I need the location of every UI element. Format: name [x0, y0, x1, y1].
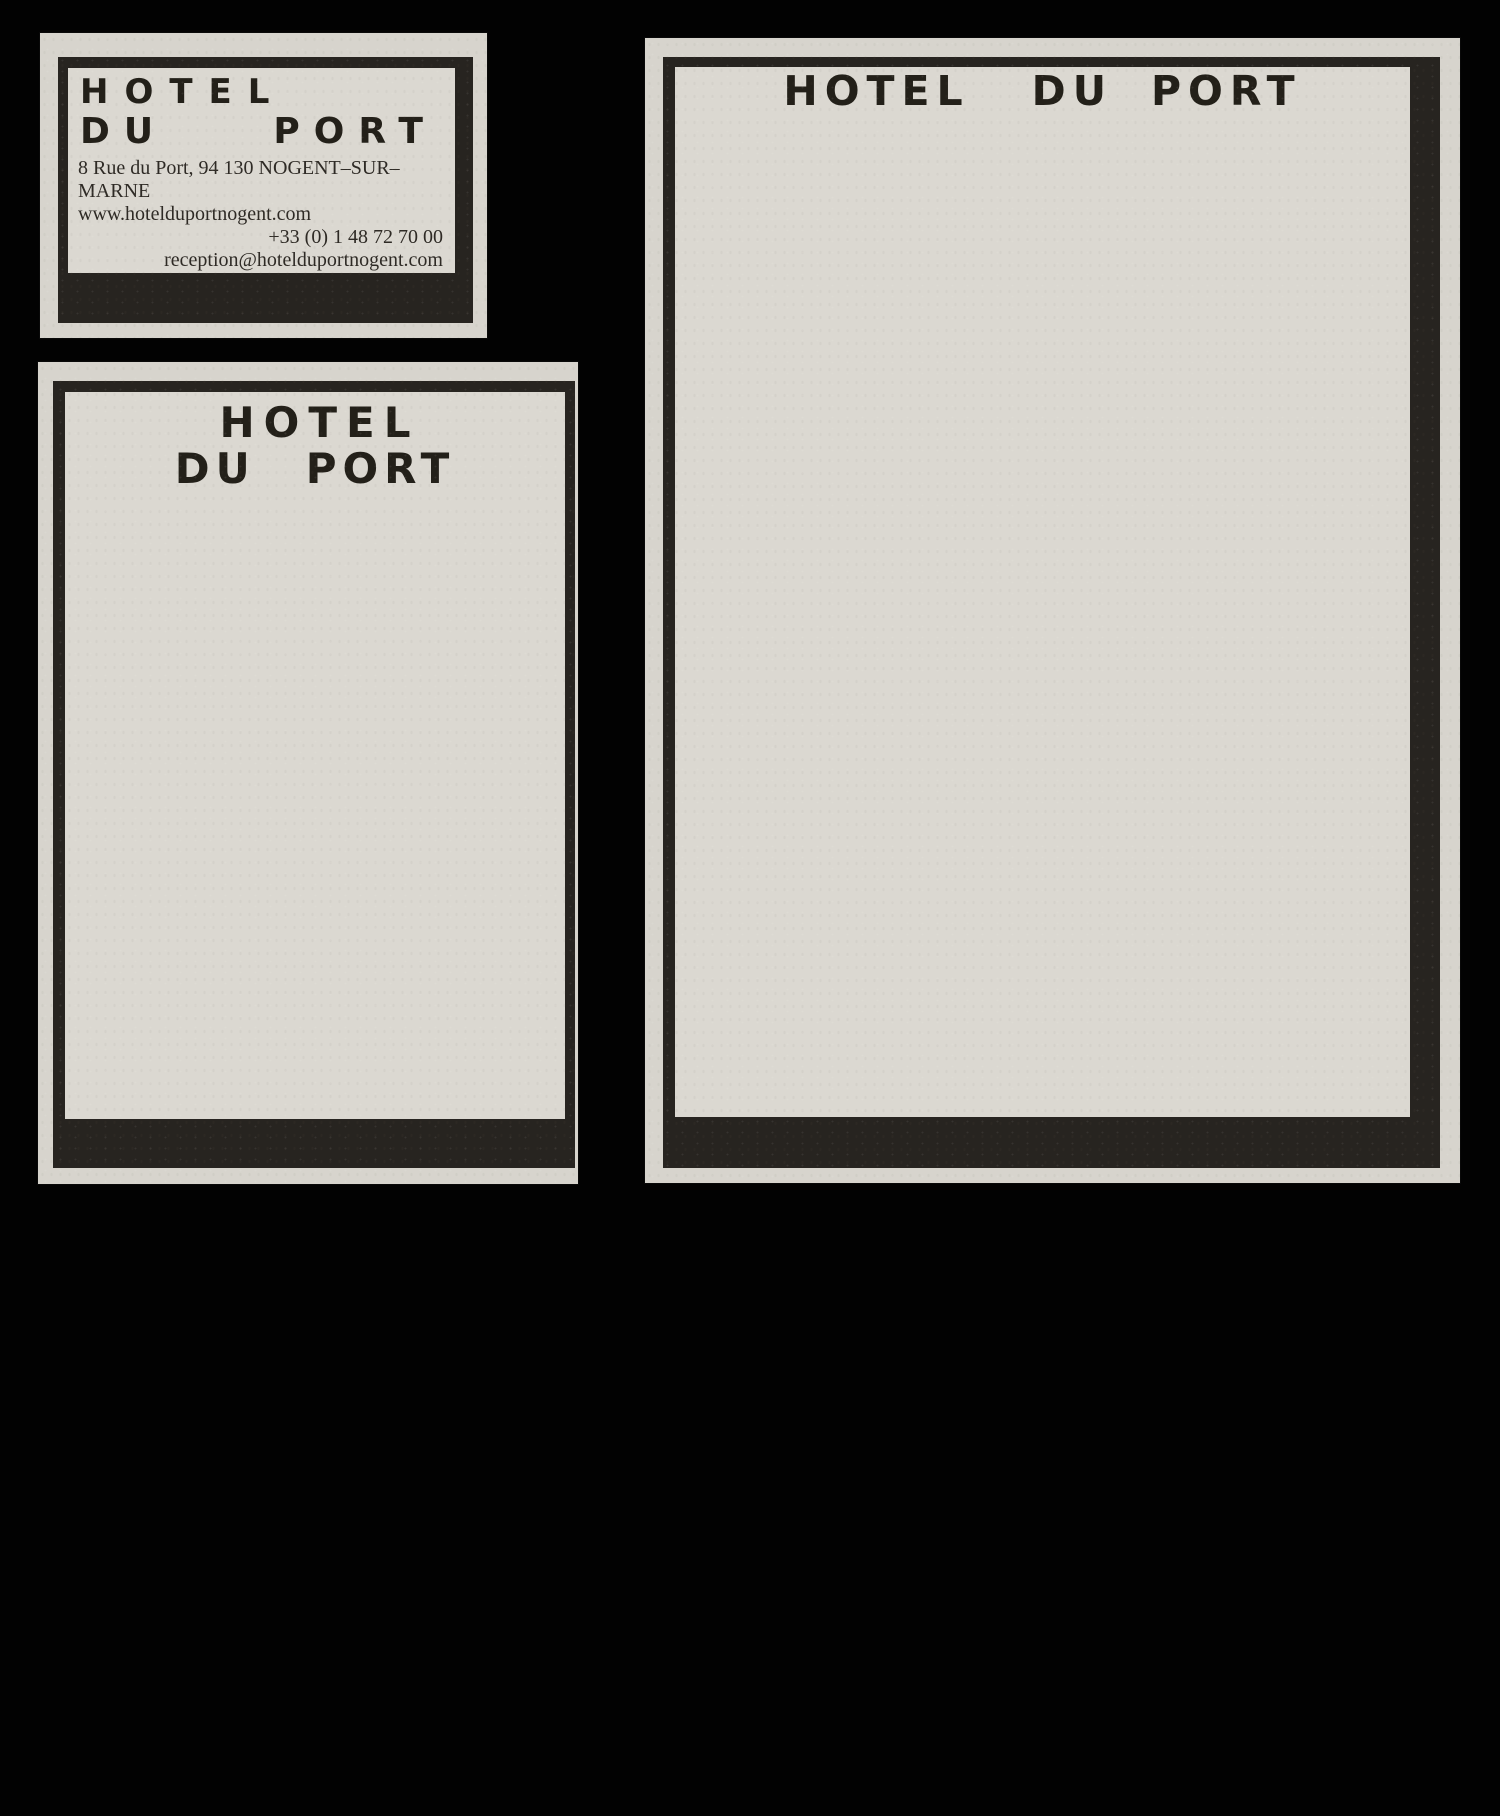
- business-card-paper-panel: HOTEL DU PORT 8 Rue du Port, 94 130 NOGE…: [68, 68, 455, 273]
- notepad-paper-panel: HOTEL DU PORT: [65, 392, 565, 1119]
- logo-word-port: PORT: [1151, 71, 1302, 112]
- stationery-mockup: HOTEL DU PORT 8 Rue du Port, 94 130 NOGE…: [0, 0, 1500, 1816]
- notepad-black-frame: HOTEL DU PORT: [53, 381, 575, 1168]
- logo-word-du: DU: [175, 448, 256, 490]
- business-card-black-frame: HOTEL DU PORT 8 Rue du Port, 94 130 NOGE…: [58, 57, 473, 323]
- logo-word-du: DU: [80, 114, 167, 150]
- letterhead: HOTEL DU PORT: [645, 38, 1460, 1183]
- logo-hotel-du-port: HOTEL DU PORT: [80, 72, 437, 150]
- website-line: www.hotelduportnogent.com: [78, 203, 443, 226]
- phone-line: +33 (0) 1 48 72 70 00: [78, 226, 443, 249]
- business-card: HOTEL DU PORT 8 Rue du Port, 94 130 NOGE…: [40, 33, 487, 338]
- notepad: HOTEL DU PORT: [38, 362, 578, 1184]
- logo-word-port: PORT: [273, 114, 437, 150]
- logo-word-port: PORT: [306, 448, 456, 490]
- letterhead-black-frame: HOTEL DU PORT: [663, 57, 1440, 1168]
- address-line: 8 Rue du Port, 94 130 NOGENT–SUR–MARNE: [78, 157, 443, 203]
- letterhead-paper-panel: HOTEL DU PORT: [675, 67, 1410, 1117]
- logo-hotel-du-port: HOTEL DU PORT: [65, 398, 565, 490]
- logo-word-hotel: HOTEL: [80, 72, 285, 112]
- logo-word-hotel: HOTEL: [783, 71, 969, 112]
- logo-hotel-du-port: HOTEL DU PORT: [675, 71, 1410, 112]
- logo-word-du: DU: [1032, 71, 1113, 112]
- email-line: reception@hotelduportnogent.com: [78, 249, 443, 272]
- contact-block: 8 Rue du Port, 94 130 NOGENT–SUR–MARNE w…: [78, 157, 443, 272]
- logo-word-hotel: HOTEL: [220, 398, 420, 447]
